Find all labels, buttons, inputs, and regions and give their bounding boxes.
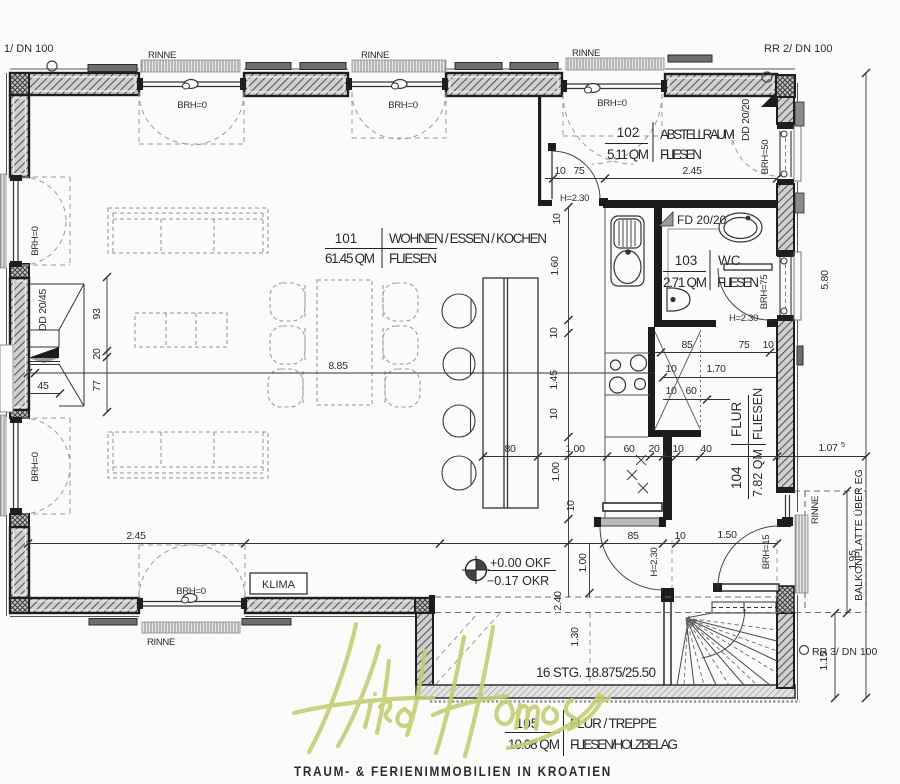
- svg-text:1.60: 1.60: [549, 256, 561, 276]
- svg-text:104: 104: [729, 466, 744, 489]
- svg-text:BRH=15: BRH=15: [761, 535, 772, 569]
- svg-text:10: 10: [565, 500, 577, 512]
- svg-text:FLIESEN: FLIESEN: [751, 388, 765, 440]
- svg-text:61.45 QM: 61.45 QM: [325, 251, 375, 266]
- svg-text:H=2.30: H=2.30: [729, 313, 758, 324]
- svg-text:ABSTELLRAUM: ABSTELLRAUM: [660, 127, 735, 142]
- svg-text:+0.00 OKF: +0.00 OKF: [490, 556, 551, 570]
- svg-text:FD 20/20: FD 20/20: [677, 213, 727, 227]
- svg-text:BRH=0: BRH=0: [30, 452, 41, 481]
- svg-text:RR 2/ DN 100: RR 2/ DN 100: [764, 43, 832, 55]
- svg-text:−0.17 OKR: −0.17 OKR: [487, 574, 549, 588]
- svg-text:1.70: 1.70: [706, 363, 726, 375]
- svg-text:1.00: 1.00: [577, 553, 589, 573]
- svg-text:5.80: 5.80: [819, 270, 831, 290]
- svg-text:BRH=0: BRH=0: [177, 100, 206, 111]
- svg-text:10: 10: [665, 385, 677, 397]
- svg-text:85: 85: [681, 339, 693, 351]
- svg-text:BALKONPLATTE ÜBER EG: BALKONPLATTE ÜBER EG: [853, 469, 865, 601]
- svg-text:8.85: 8.85: [328, 360, 348, 372]
- svg-text:10: 10: [665, 363, 677, 375]
- svg-text:75: 75: [573, 165, 585, 177]
- svg-text:1.95: 1.95: [847, 550, 859, 570]
- svg-text:1.07: 1.07: [818, 442, 838, 454]
- svg-text:45: 45: [37, 380, 49, 392]
- svg-text:DD 20/20: DD 20/20: [740, 99, 752, 141]
- svg-text:93: 93: [91, 308, 103, 320]
- svg-text:80: 80: [504, 443, 516, 455]
- svg-text:WC: WC: [718, 253, 741, 268]
- svg-text:5.11 QM: 5.11 QM: [607, 147, 649, 162]
- svg-text:10: 10: [551, 213, 563, 225]
- svg-text:RINNE: RINNE: [361, 50, 389, 61]
- svg-text:60: 60: [623, 443, 635, 455]
- svg-text:101: 101: [335, 231, 358, 246]
- svg-text:FLIESEN: FLIESEN: [717, 275, 759, 290]
- svg-text:FLUR: FLUR: [729, 401, 744, 437]
- svg-text:2.71 QM: 2.71 QM: [663, 275, 707, 290]
- svg-text:75: 75: [738, 339, 750, 351]
- svg-text:KLIMA: KLIMA: [262, 579, 296, 591]
- svg-text:10: 10: [762, 339, 774, 351]
- svg-text:103: 103: [675, 253, 698, 268]
- svg-text:60: 60: [685, 385, 697, 397]
- svg-text:BRH=0: BRH=0: [597, 98, 626, 109]
- svg-text:20: 20: [648, 443, 660, 455]
- svg-text:2.45: 2.45: [126, 530, 146, 542]
- svg-text:2.45: 2.45: [682, 165, 702, 177]
- svg-text:10: 10: [554, 165, 566, 177]
- svg-text:1.00: 1.00: [550, 462, 562, 482]
- svg-text:BRH=50: BRH=50: [760, 140, 771, 174]
- svg-text:77: 77: [91, 380, 103, 392]
- svg-text:TRAUM- & FERIENIMMOBILIEN IN K: TRAUM- & FERIENIMMOBILIEN IN KROATIEN: [294, 764, 612, 779]
- svg-text:FLIESEN/HOLZBELAG: FLIESEN/HOLZBELAG: [570, 737, 678, 752]
- svg-text:1.50: 1.50: [717, 529, 737, 541]
- svg-text:RINNE: RINNE: [148, 50, 176, 61]
- svg-text:10: 10: [548, 327, 560, 339]
- svg-text:DD 20/45: DD 20/45: [37, 289, 49, 331]
- svg-text:FLIESEN: FLIESEN: [389, 251, 437, 266]
- svg-text:2.40: 2.40: [552, 591, 564, 611]
- svg-text:RINNE: RINNE: [147, 637, 175, 648]
- svg-text:H=2.30: H=2.30: [560, 193, 589, 204]
- svg-text:10: 10: [548, 408, 560, 420]
- svg-text:BRH=75: BRH=75: [759, 275, 770, 309]
- svg-text:BRH=0: BRH=0: [30, 226, 41, 255]
- svg-text:5: 5: [841, 440, 845, 449]
- svg-text:H=2.30: H=2.30: [649, 547, 660, 576]
- svg-text:10: 10: [672, 443, 684, 455]
- svg-text:16 STG. 18.875/25.50: 16 STG. 18.875/25.50: [536, 665, 656, 680]
- svg-text:102: 102: [617, 125, 640, 140]
- svg-text:40: 40: [700, 443, 712, 455]
- svg-text:RINNE: RINNE: [810, 496, 821, 524]
- svg-text:1.45: 1.45: [548, 370, 560, 390]
- svg-text:1/ DN 100: 1/ DN 100: [4, 43, 54, 55]
- svg-text:85: 85: [627, 530, 639, 542]
- svg-text:WOHNEN / ESSEN / KOCHEN: WOHNEN / ESSEN / KOCHEN: [389, 231, 547, 246]
- svg-text:10: 10: [674, 530, 686, 542]
- svg-text:RINNE: RINNE: [572, 48, 600, 59]
- svg-text:1.15: 1.15: [818, 651, 830, 671]
- svg-text:20: 20: [91, 348, 103, 360]
- svg-text:BRH=0: BRH=0: [176, 586, 205, 597]
- svg-text:FLIESEN: FLIESEN: [660, 147, 702, 162]
- svg-text:BRH=0: BRH=0: [388, 100, 417, 111]
- svg-text:1.30: 1.30: [569, 627, 581, 647]
